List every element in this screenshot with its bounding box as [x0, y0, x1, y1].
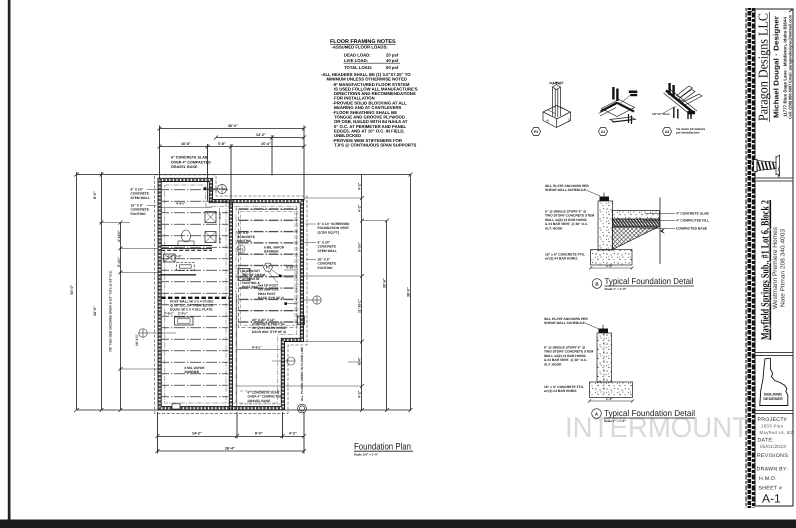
- svg-text:GRAVEL BASE: GRAVEL BASE: [248, 399, 271, 403]
- svg-text:4'-2": 4'-2": [357, 390, 361, 398]
- svg-text:20 psf: 20 psf: [386, 52, 399, 57]
- svg-text:Typical Foundation Detail: Typical Foundation Detail: [605, 276, 694, 286]
- svg-text:4'-6½": 4'-6½": [176, 202, 186, 206]
- svg-text:11'-10¾": 11'-10¾": [357, 299, 361, 313]
- svg-text:P2: P2: [266, 266, 270, 270]
- svg-text:Paragon Designs LLC: Paragon Designs LLC: [756, 13, 771, 121]
- svg-text:Mayfield Springs Sub., #1 Lot: Mayfield Springs Sub., #1 Lot 6, Block 2: [760, 200, 772, 340]
- svg-text:FOOTING: FOOTING: [131, 212, 146, 216]
- svg-text:1'-4": 1'-4": [606, 264, 613, 268]
- svg-text:ALT. HOOK: ALT. HOOK: [544, 362, 562, 366]
- svg-text:4'-6" 3'-0": 4'-6" 3'-0": [167, 255, 182, 259]
- svg-text:7/8" T&G OSB DECKING OVER 9-1/: 7/8" T&G OSB DECKING OVER 9-1/2" TJI's @…: [109, 270, 113, 352]
- svg-text:4'-2": 4'-2": [289, 432, 297, 436]
- svg-text:REVISIONS:: REVISIONS:: [757, 453, 790, 459]
- svg-text:Westmann Premiere Homes: Westmann Premiere Homes: [772, 226, 779, 309]
- svg-text:4'-10": 4'-10": [286, 266, 295, 270]
- svg-text:Mayfied L6, B2: Mayfied L6, B2: [760, 430, 794, 435]
- svg-text:4'-10½": 4'-10½": [117, 230, 121, 242]
- svg-text:6" CONCRETE SLAB: 6" CONCRETE SLAB: [171, 156, 208, 160]
- svg-text:5'-3½": 5'-3½": [357, 241, 361, 252]
- svg-text:BASE (TYP OF 2): BASE (TYP OF 2): [258, 296, 284, 300]
- svg-text:(1/150 SQ.FT.): (1/150 SQ.FT.): [318, 230, 340, 234]
- svg-text:1/2"x6" Joist: 1/2"x6" Joist: [652, 112, 670, 116]
- svg-text:Scale 1/4" = 1'-0": Scale 1/4" = 1'-0": [354, 453, 379, 457]
- svg-text:14'-2": 14'-2": [192, 432, 202, 436]
- svg-text:2'-6½": 2'-6½": [164, 312, 174, 316]
- svg-text:MINIMUM UNLESS OTHERWISE NOTED: MINIMUM UNLESS OTHERWISE NOTED: [327, 76, 407, 81]
- svg-text:BARRIER: BARRIER: [264, 250, 279, 254]
- svg-text:A1: A1: [601, 130, 606, 134]
- svg-text:DRAWN BY:: DRAWN BY:: [757, 467, 789, 473]
- svg-text:10'-1¾": 10'-1¾": [135, 334, 139, 346]
- svg-text:4'-2": 4'-2": [357, 182, 361, 190]
- svg-text:2'-8": 2'-8": [218, 236, 222, 243]
- svg-text:GRAVEL BASE: GRAVEL BASE: [171, 165, 198, 169]
- svg-text:B: B: [595, 281, 598, 286]
- svg-text:26'-4": 26'-4": [225, 447, 235, 451]
- svg-text:EQUIV. W/ 2 X 4 SILL PLATE: EQUIV. W/ 2 X 4 SILL PLATE: [170, 308, 212, 312]
- svg-text:Typical Foundation Detail: Typical Foundation Detail: [604, 408, 695, 418]
- svg-text:PROJECT#: PROJECT#: [758, 417, 788, 423]
- svg-text:8'-6½": 8'-6½": [252, 346, 262, 350]
- svg-text:34'-0": 34'-0": [93, 306, 97, 316]
- svg-text:Scale 1" = 1'-0": Scale 1" = 1'-0": [604, 419, 626, 423]
- svg-text:39'-0": 39'-0": [406, 287, 410, 297]
- svg-text:TOTAL LOAD:: TOTAL LOAD:: [344, 65, 372, 70]
- svg-text:4" COMPACTED FILL: 4" COMPACTED FILL: [676, 219, 709, 223]
- svg-text:4'-2": 4'-2": [357, 204, 361, 212]
- svg-text:2'-0½": 2'-0½": [178, 312, 188, 316]
- svg-text:3'-1": 3'-1": [218, 212, 222, 219]
- svg-text:Michael Dougal · Designer: Michael Dougal · Designer: [773, 16, 781, 118]
- svg-text:8'-4": 8'-4": [357, 357, 361, 365]
- svg-text:FOOTING: FOOTING: [237, 239, 252, 243]
- svg-text:1603 Plan: 1603 Plan: [761, 424, 784, 429]
- svg-text:5'-8": 5'-8": [218, 142, 226, 146]
- svg-text:STEM WALL: STEM WALL: [318, 249, 337, 253]
- svg-text:STEM WALL: STEM WALL: [131, 196, 150, 200]
- svg-text:SHEAR WALL SCHEDULE: SHEAR WALL SCHEDULE: [545, 188, 587, 192]
- svg-text:ALL PLUMB. DOWN TO FLOOR LINE: ALL PLUMB. DOWN TO FLOOR LINE: [300, 347, 304, 401]
- svg-text:30'-6": 30'-6": [382, 278, 386, 288]
- svg-text:P2: P2: [534, 130, 538, 134]
- svg-text:OVER 4" COMPACTED: OVER 4" COMPACTED: [171, 160, 211, 164]
- svg-text:A1: A1: [239, 247, 243, 251]
- svg-text:ALT. HOOK: ALT. HOOK: [545, 226, 563, 230]
- svg-text:FOOTING: FOOTING: [318, 266, 333, 270]
- svg-text:Nate Pitman 208.340.4003: Nate Pitman 208.340.4003: [780, 228, 787, 307]
- svg-text:8'-0": 8'-0": [93, 191, 97, 199]
- svg-text:14'-2": 14'-2": [256, 133, 266, 137]
- svg-text:BUILDING: BUILDING: [764, 393, 782, 397]
- svg-text:TJI'S @ CONTINUOUS SPAN SUPPOR: TJI'S @ CONTINUOUS SPAN SUPPORTS: [334, 142, 416, 147]
- svg-text:POST PAD: POST PAD: [242, 285, 259, 289]
- svg-text:60 psf: 60 psf: [386, 65, 399, 70]
- svg-text:4" CONCRETE SLAB: 4" CONCRETE SLAB: [676, 212, 709, 216]
- svg-text:per manufacture: per manufacture: [676, 131, 700, 135]
- svg-text:BARRIER: BARRIER: [185, 370, 200, 374]
- svg-text:5'-4½": 5'-4½": [117, 256, 121, 267]
- svg-text:LIVE LOAD:: LIVE LOAD:: [344, 58, 368, 63]
- svg-text:16'-8": 16'-8": [181, 142, 191, 146]
- svg-text:A-1: A-1: [762, 492, 781, 506]
- svg-text:1'-4": 1'-4": [606, 397, 613, 401]
- svg-text:DEAD LOAD:: DEAD LOAD:: [344, 52, 371, 57]
- svg-text:Foundation Plan: Foundation Plan: [354, 441, 411, 452]
- svg-text:Cell: (208) 880-5807 Email: pa: Cell: (208) 880-5807 Email: paragondesig…: [788, 15, 793, 119]
- svg-text:05/01/2023: 05/01/2023: [760, 444, 786, 449]
- svg-text:15'-4": 15'-4": [261, 142, 271, 146]
- svg-text:COMPACTED BASE: COMPACTED BASE: [676, 227, 708, 231]
- svg-text:36'-0": 36'-0": [228, 124, 238, 128]
- svg-text:w/ (2) #4 BAR HORIZ.: w/ (2) #4 BAR HORIZ.: [543, 389, 577, 393]
- svg-text:H.M.D.: H.M.D.: [759, 476, 777, 482]
- svg-text:-ASSUMED FLOOR LOADS:: -ASSUMED FLOOR LOADS:: [332, 45, 388, 50]
- svg-text:DATE:: DATE:: [758, 438, 774, 444]
- svg-text:40 psf: 40 psf: [386, 58, 399, 63]
- svg-text:DESIGNER: DESIGNER: [763, 397, 783, 401]
- svg-text:8'-0": 8'-0": [255, 432, 263, 436]
- svg-text:w/ (2) #4 BAR HORIZ.: w/ (2) #4 BAR HORIZ.: [544, 257, 578, 261]
- svg-text:EACH WAY (TYP OF 3): EACH WAY (TYP OF 3): [252, 330, 286, 334]
- svg-text:60'-0": 60'-0": [70, 284, 74, 294]
- svg-text:Scale 1" = 1'-0": Scale 1" = 1'-0": [605, 287, 627, 291]
- svg-text:A2: A2: [665, 130, 670, 134]
- svg-text:SHEAR WALL SCHEDULE: SHEAR WALL SCHEDULE: [544, 321, 586, 325]
